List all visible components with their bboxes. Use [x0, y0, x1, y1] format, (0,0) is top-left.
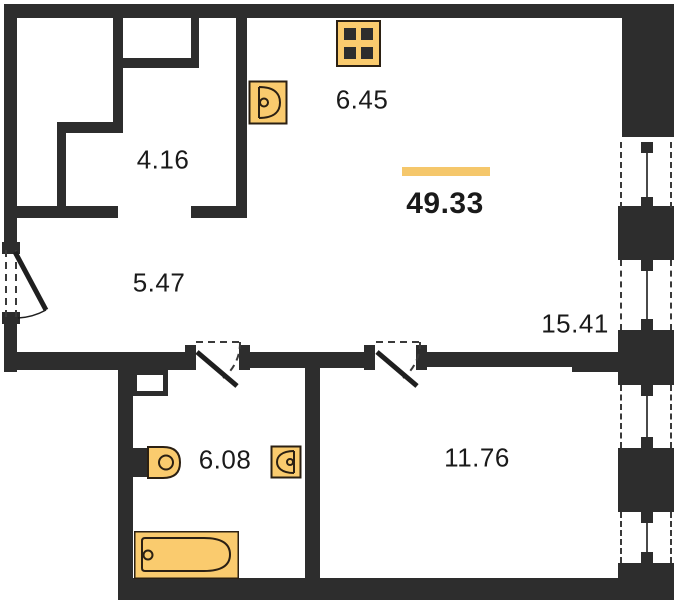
window	[620, 385, 672, 448]
wall-right-pier	[618, 206, 674, 260]
window-joint	[641, 260, 653, 271]
wall-interior	[17, 352, 185, 370]
total-area-bar	[402, 167, 490, 176]
window-joint	[641, 197, 653, 208]
window	[620, 260, 672, 330]
wall-interior	[191, 206, 247, 218]
wall-interior	[572, 352, 622, 372]
room-area-living: 15.41	[541, 309, 609, 340]
bedroom-door-icon	[365, 322, 431, 394]
wall-top	[4, 4, 674, 18]
room-area-bathroom: 6.08	[199, 445, 252, 476]
stove-icon	[336, 20, 381, 67]
wall-interior	[15, 206, 118, 218]
wall-right-pier	[618, 448, 674, 512]
bathroom-door-icon	[185, 322, 251, 394]
window-joint	[641, 552, 653, 563]
kitchen-sink-icon	[248, 80, 288, 125]
window-joint	[641, 512, 653, 523]
room-area-wardrobe: 4.16	[137, 145, 190, 176]
wall-interior	[122, 58, 198, 68]
window	[620, 512, 672, 563]
wall-interior	[236, 18, 247, 218]
wall-interior	[113, 18, 123, 133]
total-area: 49.33	[406, 187, 484, 221]
wall-bottom	[118, 578, 674, 600]
entrance-door-icon	[0, 238, 64, 334]
floor-plan: 4.16 6.45 5.47 15.41 6.08 11.76 49.33	[0, 0, 674, 600]
bathtub-icon	[134, 531, 239, 579]
duct-shaft	[132, 370, 168, 396]
room-area-bedroom: 11.76	[444, 443, 510, 474]
window-joint	[641, 142, 653, 153]
window-joint	[641, 385, 653, 396]
wall-right-pier	[622, 4, 674, 137]
wall-right-pier	[618, 330, 674, 385]
room-area-kitchen: 6.45	[336, 85, 389, 116]
wall-interior	[118, 352, 133, 600]
window-joint	[641, 319, 653, 330]
toilet-icon	[133, 446, 182, 479]
room-area-hallway: 5.47	[133, 268, 186, 299]
window	[620, 142, 672, 208]
wall-interior	[57, 122, 66, 210]
window-joint	[641, 437, 653, 448]
washbasin-icon	[270, 445, 302, 479]
wall-interior	[305, 352, 320, 583]
wall-interior	[57, 122, 123, 133]
wall-right-pier	[618, 563, 674, 600]
